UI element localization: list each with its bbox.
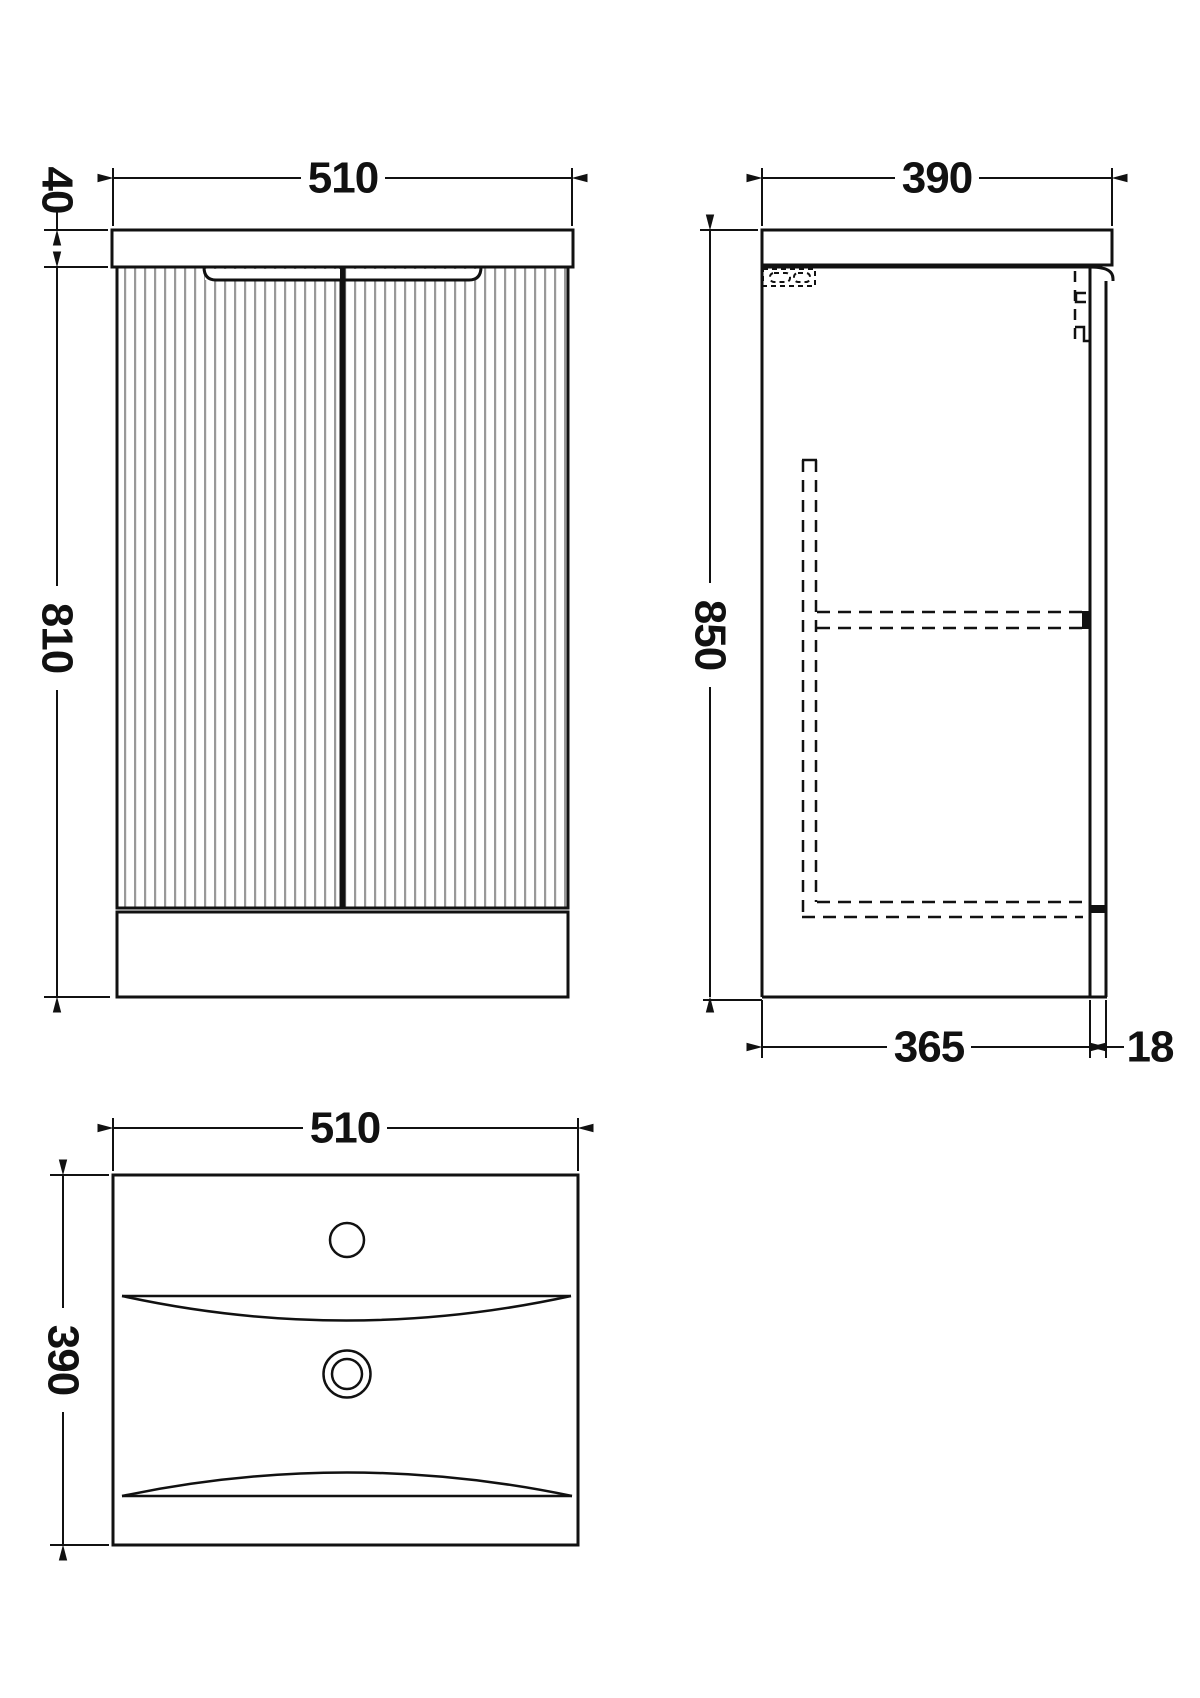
front-dim-countertop: 40 [33, 167, 109, 267]
front-right-door [344, 267, 568, 908]
dim-plan-width-label: 510 [310, 1104, 380, 1153]
technical-drawing: 510 40 810 [0, 0, 1200, 1698]
dim-side-height-label: 850 [686, 600, 735, 670]
front-plinth [117, 912, 568, 997]
plan-view: 510 390 [39, 1104, 579, 1546]
side-dim-height: 850 [686, 230, 763, 1000]
plan-dim-width: 510 [113, 1104, 578, 1172]
dim-side-carcass-label: 365 [894, 1023, 965, 1072]
side-countertop [762, 230, 1112, 265]
side-dim-bottom: 365 18 [762, 1000, 1174, 1072]
dim-front-height-label: 810 [33, 603, 82, 673]
front-dim-height: 810 [33, 267, 111, 997]
side-view: 390 850 365 18 [686, 154, 1174, 1072]
side-hidden-panels [802, 460, 1106, 917]
dim-plan-depth-label: 390 [39, 1325, 88, 1395]
front-dim-width: 510 [113, 154, 572, 227]
side-countertop-lip [1088, 267, 1113, 281]
plan-dim-depth: 390 [39, 1175, 110, 1545]
front-view: 510 40 810 [33, 154, 574, 998]
side-carcass [762, 265, 1107, 997]
side-dim-depth: 390 [762, 154, 1112, 227]
technical-drawing-page: 510 40 810 [0, 0, 1200, 1698]
dim-front-width-label: 510 [308, 154, 378, 203]
side-hinge-plate [763, 269, 815, 286]
dim-side-depth-label: 390 [902, 154, 972, 203]
front-left-door [117, 267, 341, 908]
side-hinge-arm [1075, 271, 1090, 341]
dim-side-door-label: 18 [1127, 1023, 1174, 1072]
front-countertop [112, 230, 573, 267]
dim-front-countertop-label: 40 [33, 167, 82, 214]
